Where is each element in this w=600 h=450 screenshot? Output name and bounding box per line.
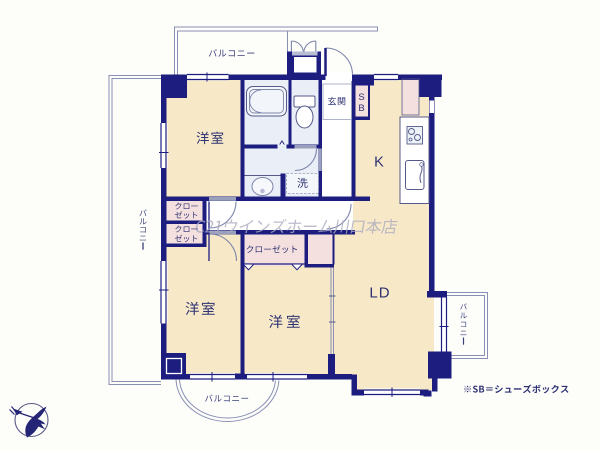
svg-text:S: S — [358, 92, 364, 103]
svg-text:LD: LD — [369, 285, 390, 302]
svg-text:B: B — [358, 103, 364, 114]
svg-text:K: K — [374, 155, 384, 171]
